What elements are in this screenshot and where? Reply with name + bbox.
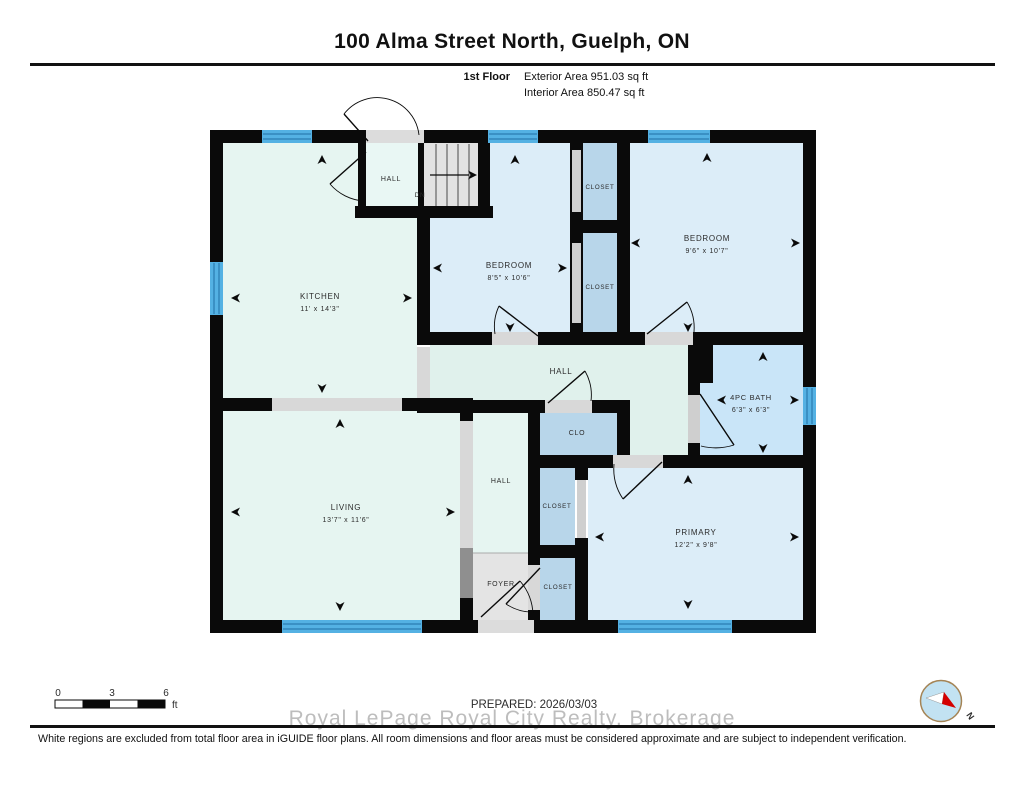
- closet-top2-label: CLOSET: [586, 284, 615, 291]
- living-label: LIVING: [331, 503, 361, 512]
- bedroom-right-dims: 9'6" x 10'7": [686, 248, 729, 255]
- bath-dims: 6'3" x 6'3": [732, 407, 770, 414]
- primary-label: PRIMARY: [675, 528, 716, 537]
- bedroom-mid-dims: 8'5" x 10'6": [488, 275, 531, 282]
- hall-lower-label: HALL: [491, 478, 511, 485]
- primary-dims: 12'2" x 9'8": [675, 542, 718, 549]
- floor-plan-figure: HALL DN KITCHEN 11' x 14'3" BEDROOM 8'5"…: [0, 0, 1024, 791]
- scale-tick-3: 3: [109, 688, 115, 699]
- stairs-dn-label: DN: [415, 192, 426, 199]
- closet-bottom-label: CLOSET: [544, 584, 573, 591]
- bedroom-mid-label: BEDROOM: [486, 261, 532, 270]
- bedroom-right-label: BEDROOM: [684, 234, 730, 243]
- footer-divider: [30, 725, 995, 728]
- closet-top1-label: CLOSET: [586, 184, 615, 191]
- foyer-label: FOYER: [487, 581, 515, 588]
- clo-label: CLO: [569, 430, 586, 437]
- closet-mid-label: CLOSET: [543, 503, 572, 510]
- kitchen-dims: 11' x 14'3": [300, 306, 339, 313]
- disclaimer-text: White regions are excluded from total fl…: [38, 733, 998, 745]
- scale-tick-6: 6: [163, 688, 169, 699]
- living-dims: 13'7" x 11'6": [323, 517, 370, 524]
- scale-tick-0: 0: [55, 688, 61, 699]
- hall-center-label: HALL: [550, 367, 573, 376]
- kitchen-label: KITCHEN: [300, 292, 340, 301]
- floor-plan-page: 100 Alma Street North, Guelph, ON 1st Fl…: [0, 0, 1024, 791]
- bath-label: 4PC BATH: [730, 393, 772, 402]
- hall-top-label: HALL: [381, 176, 401, 183]
